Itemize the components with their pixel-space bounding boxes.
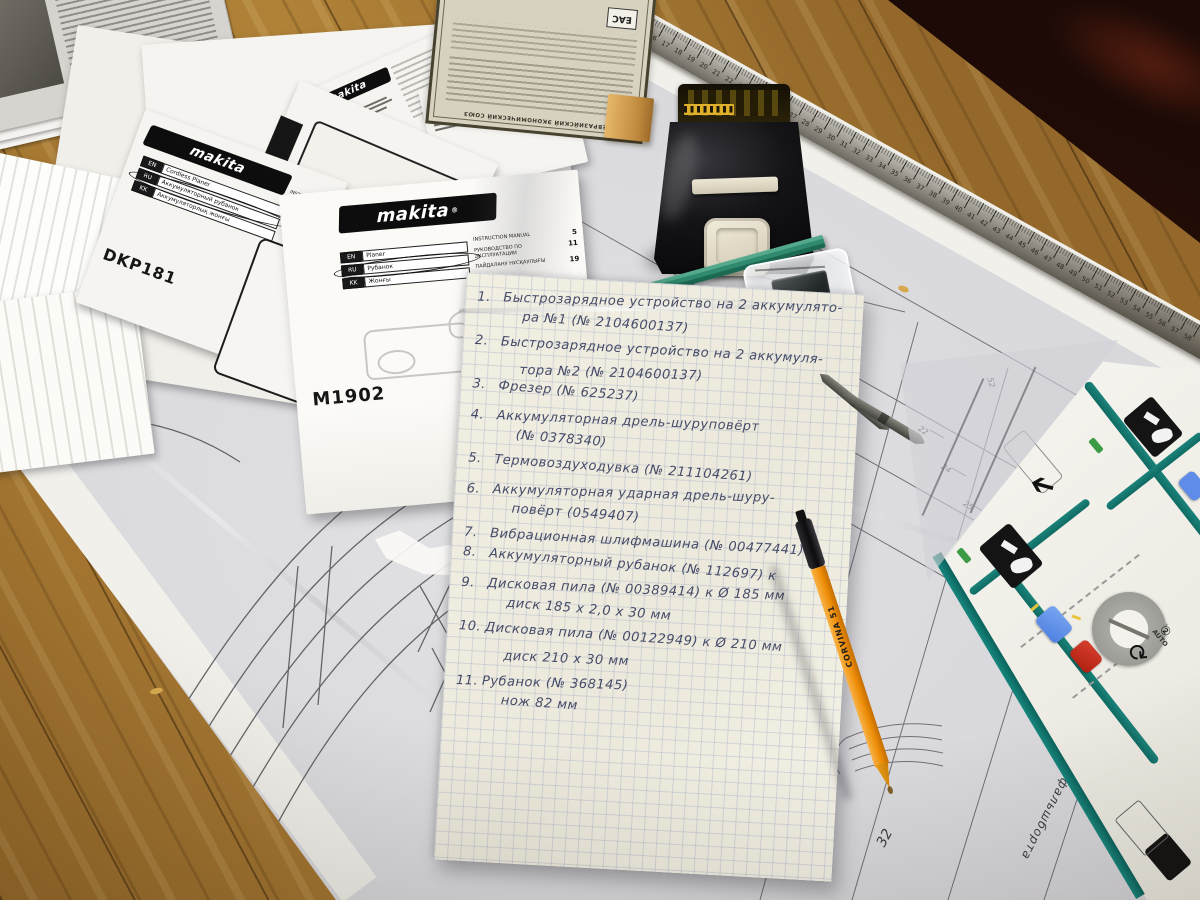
ruler-number: 49: [1067, 267, 1078, 278]
ruler-number: 38: [927, 189, 938, 200]
ruler-number: 46: [1029, 246, 1040, 257]
ruler-number: 52: [1106, 289, 1117, 300]
ruler-number: 43: [991, 225, 1002, 236]
note-line-text: диск 210 х 30 мм: [503, 649, 629, 669]
note-item-number: 5.: [468, 450, 495, 467]
ruler-number: 40: [953, 203, 964, 214]
note-item-number: 8.: [463, 544, 490, 561]
ruler-number: 50: [1080, 275, 1091, 286]
note-line-text: повёрт (0549407): [511, 502, 640, 526]
dial-needle: [1108, 618, 1150, 640]
note-line-text: Фрезер (№ 625237): [498, 378, 639, 404]
slot-icon: [1000, 540, 1018, 555]
ruler-number: 54: [1131, 303, 1142, 314]
note-line-text: нож 82 мм: [500, 693, 578, 713]
ruler-number: 19: [685, 53, 696, 64]
ruler-number: 44: [1004, 232, 1015, 243]
ruler-number: 45: [1016, 239, 1027, 250]
finger-icon: [1009, 555, 1034, 575]
ruler-number: 33: [864, 153, 875, 164]
finger-icon: [1151, 426, 1175, 444]
photo-workbench-scene: фальшборта 32 22 24 25 52 13141516171819…: [0, 0, 1200, 900]
ruler-number: 20: [698, 60, 709, 71]
note-item-number: 2.: [475, 333, 502, 349]
note-item-number: 7.: [464, 525, 491, 541]
ruler-number: 55: [1144, 310, 1155, 321]
note-lines: 1.Быстрозарядное устройство на 2 аккумул…: [434, 272, 864, 881]
ruler-number: 42: [978, 217, 989, 228]
ruler-number: 36: [902, 175, 913, 186]
note-item: 11.Рубанок (№ 368145)нож 82 мм: [454, 668, 832, 728]
ruler-number: 41: [965, 210, 976, 221]
ruler-number: 56: [1156, 318, 1167, 329]
note-item-number: 9.: [461, 575, 488, 591]
model-dkp181: DKP181: [101, 244, 180, 288]
ruler-number: 58: [1182, 332, 1193, 343]
note-item-number: 4.: [470, 407, 497, 423]
note-item-number: 10.: [458, 618, 485, 635]
note-paper: 1.Быстрозарядное устройство на 2 аккумул…: [434, 272, 864, 881]
pen-ball-point: [887, 785, 894, 794]
ruler-number: 57: [1169, 325, 1180, 336]
ruler-number: 37: [915, 182, 926, 193]
ruler-number: 31: [838, 139, 849, 150]
slot-icon: [1143, 412, 1159, 426]
eac-mark: ЕАС: [606, 7, 638, 30]
note-item-number: 1.: [477, 290, 503, 306]
note-line-text: тора №2 (№ 2104600137): [519, 363, 703, 384]
lid-scratch: [755, 266, 825, 272]
ruler-number: 34: [876, 160, 887, 171]
note-line-text: диск 185 х 2,0 х 30 мм: [506, 596, 672, 624]
ruler-number: 32: [851, 146, 862, 157]
ruler-number: 30: [825, 132, 836, 143]
ruler-number: 53: [1118, 296, 1129, 307]
wooden-block: [604, 94, 654, 143]
note-line-text: (№ 0378340): [515, 428, 607, 450]
battery-label: [684, 104, 734, 115]
ruler-number: 35: [889, 167, 900, 178]
ruler-number: 39: [940, 196, 951, 207]
note-item-number: 11.: [456, 673, 482, 689]
note-item-number: 3.: [472, 376, 499, 393]
note-item-number: 6.: [466, 481, 492, 497]
battery-latch: [692, 177, 778, 195]
ruler-number: 17: [660, 39, 671, 50]
ruler-number: 48: [1055, 260, 1066, 271]
ruler-number: 18: [673, 46, 684, 57]
ruler-number: 47: [1042, 253, 1053, 264]
note-line-text: Рубанок (№ 368145): [482, 674, 629, 694]
ruler-number: 21: [711, 67, 722, 78]
note-line-text: ра №1 (№ 2104600137): [522, 310, 689, 336]
ruler-number: 51: [1093, 282, 1104, 293]
